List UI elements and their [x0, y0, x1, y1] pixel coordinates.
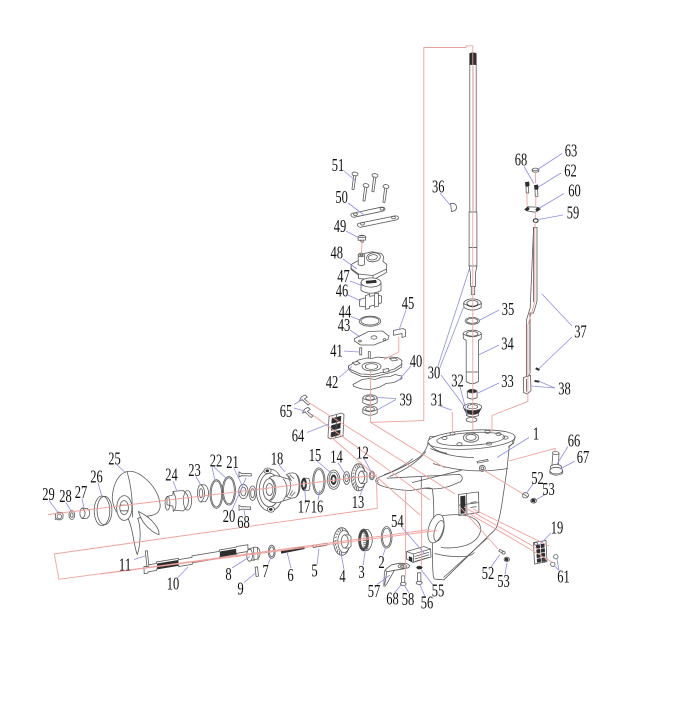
svg-text:16: 16 — [311, 497, 324, 517]
svg-text:60: 60 — [568, 181, 581, 201]
svg-text:41: 41 — [330, 341, 343, 361]
svg-text:33: 33 — [501, 371, 514, 391]
svg-text:61: 61 — [557, 567, 570, 587]
svg-text:10: 10 — [167, 574, 180, 594]
svg-text:6: 6 — [287, 565, 293, 585]
svg-text:53: 53 — [497, 571, 510, 591]
svg-text:23: 23 — [188, 460, 201, 480]
svg-text:7: 7 — [262, 561, 268, 581]
svg-text:14: 14 — [330, 447, 343, 467]
svg-text:62: 62 — [564, 161, 577, 181]
svg-text:30: 30 — [428, 363, 441, 383]
svg-text:17: 17 — [298, 497, 311, 517]
svg-text:13: 13 — [352, 492, 365, 512]
svg-text:32: 32 — [451, 371, 464, 391]
svg-text:15: 15 — [309, 445, 322, 465]
svg-text:2: 2 — [378, 552, 384, 572]
svg-text:28: 28 — [59, 486, 72, 506]
svg-text:20: 20 — [223, 506, 236, 526]
svg-text:24: 24 — [165, 465, 178, 485]
svg-text:46: 46 — [336, 281, 349, 301]
svg-text:65: 65 — [280, 401, 293, 421]
svg-text:48: 48 — [330, 243, 343, 263]
svg-text:27: 27 — [75, 482, 88, 502]
svg-text:38: 38 — [558, 379, 571, 399]
svg-text:49: 49 — [334, 216, 347, 236]
svg-text:37: 37 — [574, 322, 587, 342]
svg-text:50: 50 — [335, 187, 348, 207]
svg-text:67: 67 — [577, 447, 590, 467]
svg-text:35: 35 — [502, 299, 515, 319]
svg-text:21: 21 — [226, 452, 239, 472]
svg-text:12: 12 — [356, 443, 369, 463]
svg-text:68: 68 — [237, 512, 250, 532]
svg-text:58: 58 — [402, 589, 415, 609]
svg-text:29: 29 — [42, 484, 55, 504]
svg-text:56: 56 — [421, 593, 434, 613]
svg-text:22: 22 — [210, 451, 223, 471]
svg-text:57: 57 — [368, 581, 381, 601]
svg-text:53: 53 — [542, 479, 555, 499]
svg-text:45: 45 — [402, 293, 415, 313]
svg-text:42: 42 — [326, 372, 339, 392]
svg-text:36: 36 — [432, 177, 445, 197]
svg-text:59: 59 — [567, 203, 580, 223]
svg-text:51: 51 — [332, 155, 345, 175]
svg-text:55: 55 — [432, 581, 445, 601]
svg-text:18: 18 — [271, 449, 284, 469]
svg-text:11: 11 — [119, 555, 132, 575]
svg-text:4: 4 — [339, 566, 345, 586]
svg-text:1: 1 — [533, 424, 539, 444]
svg-text:25: 25 — [108, 449, 121, 469]
svg-text:52: 52 — [482, 563, 495, 583]
svg-text:8: 8 — [225, 564, 231, 584]
svg-text:9: 9 — [237, 579, 243, 599]
svg-text:31: 31 — [431, 390, 444, 410]
svg-text:68: 68 — [515, 150, 528, 170]
svg-text:26: 26 — [90, 467, 103, 487]
svg-text:63: 63 — [565, 141, 578, 161]
svg-text:54: 54 — [391, 511, 404, 531]
svg-text:19: 19 — [551, 518, 564, 538]
svg-text:5: 5 — [311, 561, 317, 581]
svg-text:68: 68 — [386, 589, 399, 609]
svg-text:3: 3 — [358, 562, 364, 582]
svg-text:64: 64 — [292, 426, 305, 446]
svg-text:34: 34 — [501, 334, 514, 354]
svg-text:39: 39 — [400, 390, 413, 410]
svg-text:40: 40 — [410, 351, 423, 371]
svg-text:43: 43 — [338, 315, 351, 335]
